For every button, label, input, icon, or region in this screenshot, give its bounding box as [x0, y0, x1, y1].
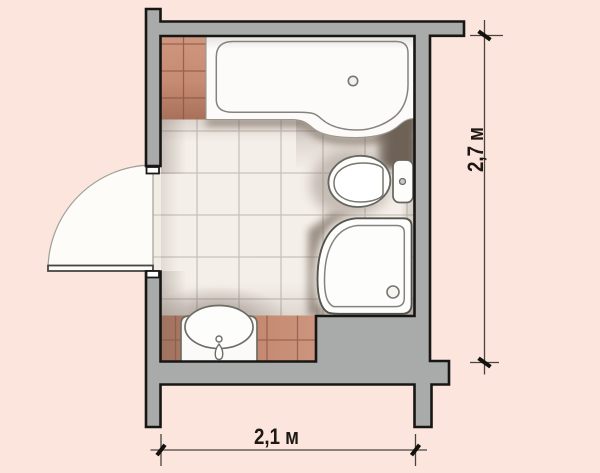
svg-text:2,1 м: 2,1 м [254, 426, 299, 450]
svg-text:2,7 м: 2,7 м [465, 127, 489, 172]
